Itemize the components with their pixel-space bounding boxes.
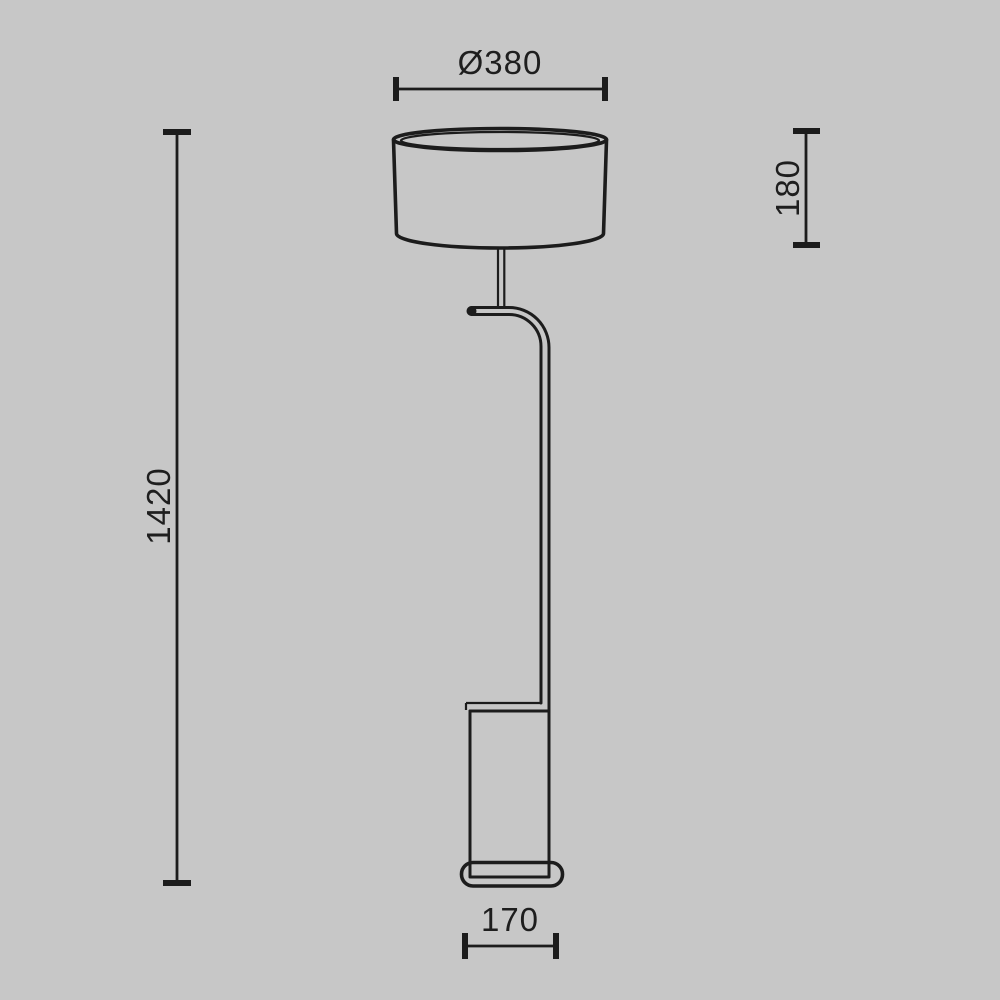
dimension-shade-height: 180: [769, 131, 820, 245]
total-height-label: 1420: [140, 467, 177, 544]
arm-inner-line: [472, 315, 542, 704]
shade-rim-inner: [401, 132, 599, 149]
stem-rod: [498, 248, 504, 306]
dimension-base-width: 170: [465, 901, 556, 959]
dimension-shade-diameter: Ø380: [396, 44, 605, 101]
dimension-total-height: 1420: [140, 132, 191, 883]
shade-height-label: 180: [769, 159, 806, 217]
floor-lamp: [394, 129, 607, 887]
shade-body-outline: [394, 140, 607, 248]
arm-outer-line: [472, 308, 550, 878]
base-width-label: 170: [481, 901, 539, 938]
floor-lamp-technical-drawing: Ø380 180 1420 170: [0, 0, 1000, 1000]
dimension-drawing: Ø380 180 1420 170: [0, 0, 1000, 1000]
base-top-lip: [466, 703, 541, 710]
base-cylinder: [466, 703, 549, 877]
shade-diameter-label: Ø380: [458, 44, 543, 81]
curved-arm: [467, 306, 550, 877]
lampshade: [394, 129, 607, 249]
base-plate: [462, 863, 563, 887]
